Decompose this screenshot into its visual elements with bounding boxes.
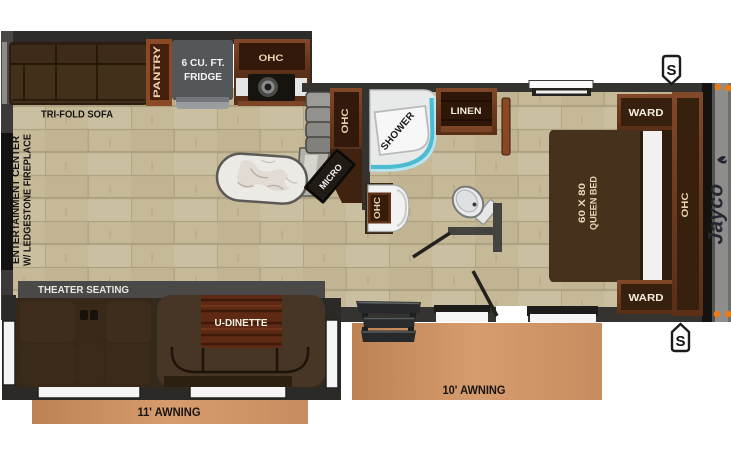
svg-text:ENTERTAINMENT CENTER: ENTERTAINMENT CENTER <box>11 135 22 264</box>
svg-text:WARD: WARD <box>629 293 664 304</box>
svg-text:11' AWNING: 11' AWNING <box>138 405 201 419</box>
svg-text:10' AWNING: 10' AWNING <box>443 383 506 397</box>
svg-text:OHC: OHC <box>680 192 691 217</box>
svg-text:S: S <box>666 62 676 79</box>
svg-text:60 X 80: 60 X 80 <box>577 183 588 223</box>
svg-text:OHC: OHC <box>259 53 284 64</box>
svg-text:THEATER SEATING: THEATER SEATING <box>38 285 129 296</box>
svg-text:W/ LEDGESTONE FIREPLACE: W/ LEDGESTONE FIREPLACE <box>23 134 34 266</box>
svg-text:6 CU. FT.: 6 CU. FT. <box>182 57 225 69</box>
svg-text:FRIDGE: FRIDGE <box>184 71 222 83</box>
svg-text:OHC: OHC <box>372 197 382 219</box>
svg-text:U-DINETTE: U-DINETTE <box>215 318 268 329</box>
svg-text:S: S <box>675 333 685 350</box>
svg-text:Jayco: Jayco <box>705 183 728 244</box>
svg-text:QUEEN BED: QUEEN BED <box>589 176 600 230</box>
svg-text:WARD: WARD <box>629 108 664 119</box>
svg-text:OHC: OHC <box>340 108 351 133</box>
svg-text:PANTRY: PANTRY <box>152 45 163 98</box>
svg-text:LINEN: LINEN <box>451 106 482 117</box>
svg-text:TRI-FOLD SOFA: TRI-FOLD SOFA <box>41 110 113 121</box>
